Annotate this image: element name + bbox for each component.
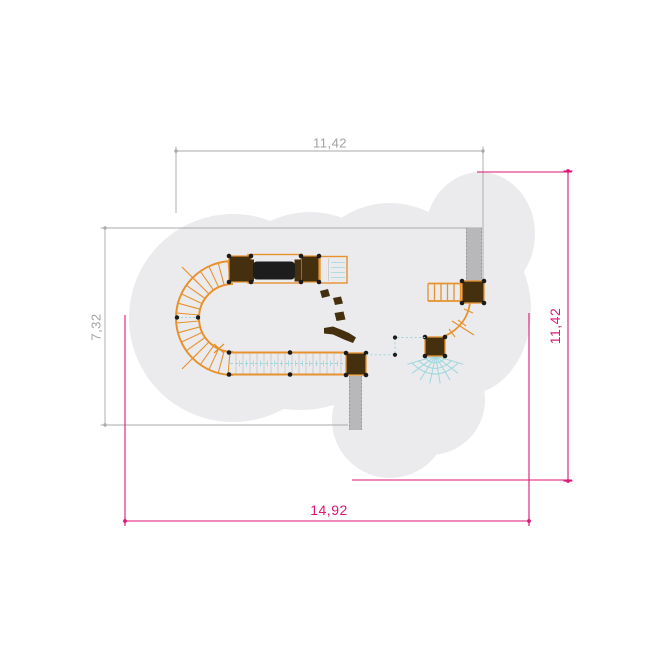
dimension-label-top: 11,42 xyxy=(313,136,347,151)
tunnel-end-cap xyxy=(295,260,302,282)
stepping-stone xyxy=(335,312,346,322)
crawl-tunnel xyxy=(253,262,295,280)
slide-bottom xyxy=(349,376,362,430)
platform xyxy=(425,337,445,356)
platform xyxy=(229,256,251,282)
platform xyxy=(462,281,484,303)
dimension-label-bottom: 14,92 xyxy=(310,502,348,518)
safety-area-outline xyxy=(129,172,535,478)
platform xyxy=(346,353,366,375)
slide-top-right xyxy=(466,228,482,283)
platform xyxy=(301,256,319,282)
dimension-label-right: 11,42 xyxy=(547,308,563,345)
dimension-label-left: 7,32 xyxy=(89,313,104,340)
plan-canvas: 11,42 7,32 11,42 14,92 xyxy=(0,0,660,660)
